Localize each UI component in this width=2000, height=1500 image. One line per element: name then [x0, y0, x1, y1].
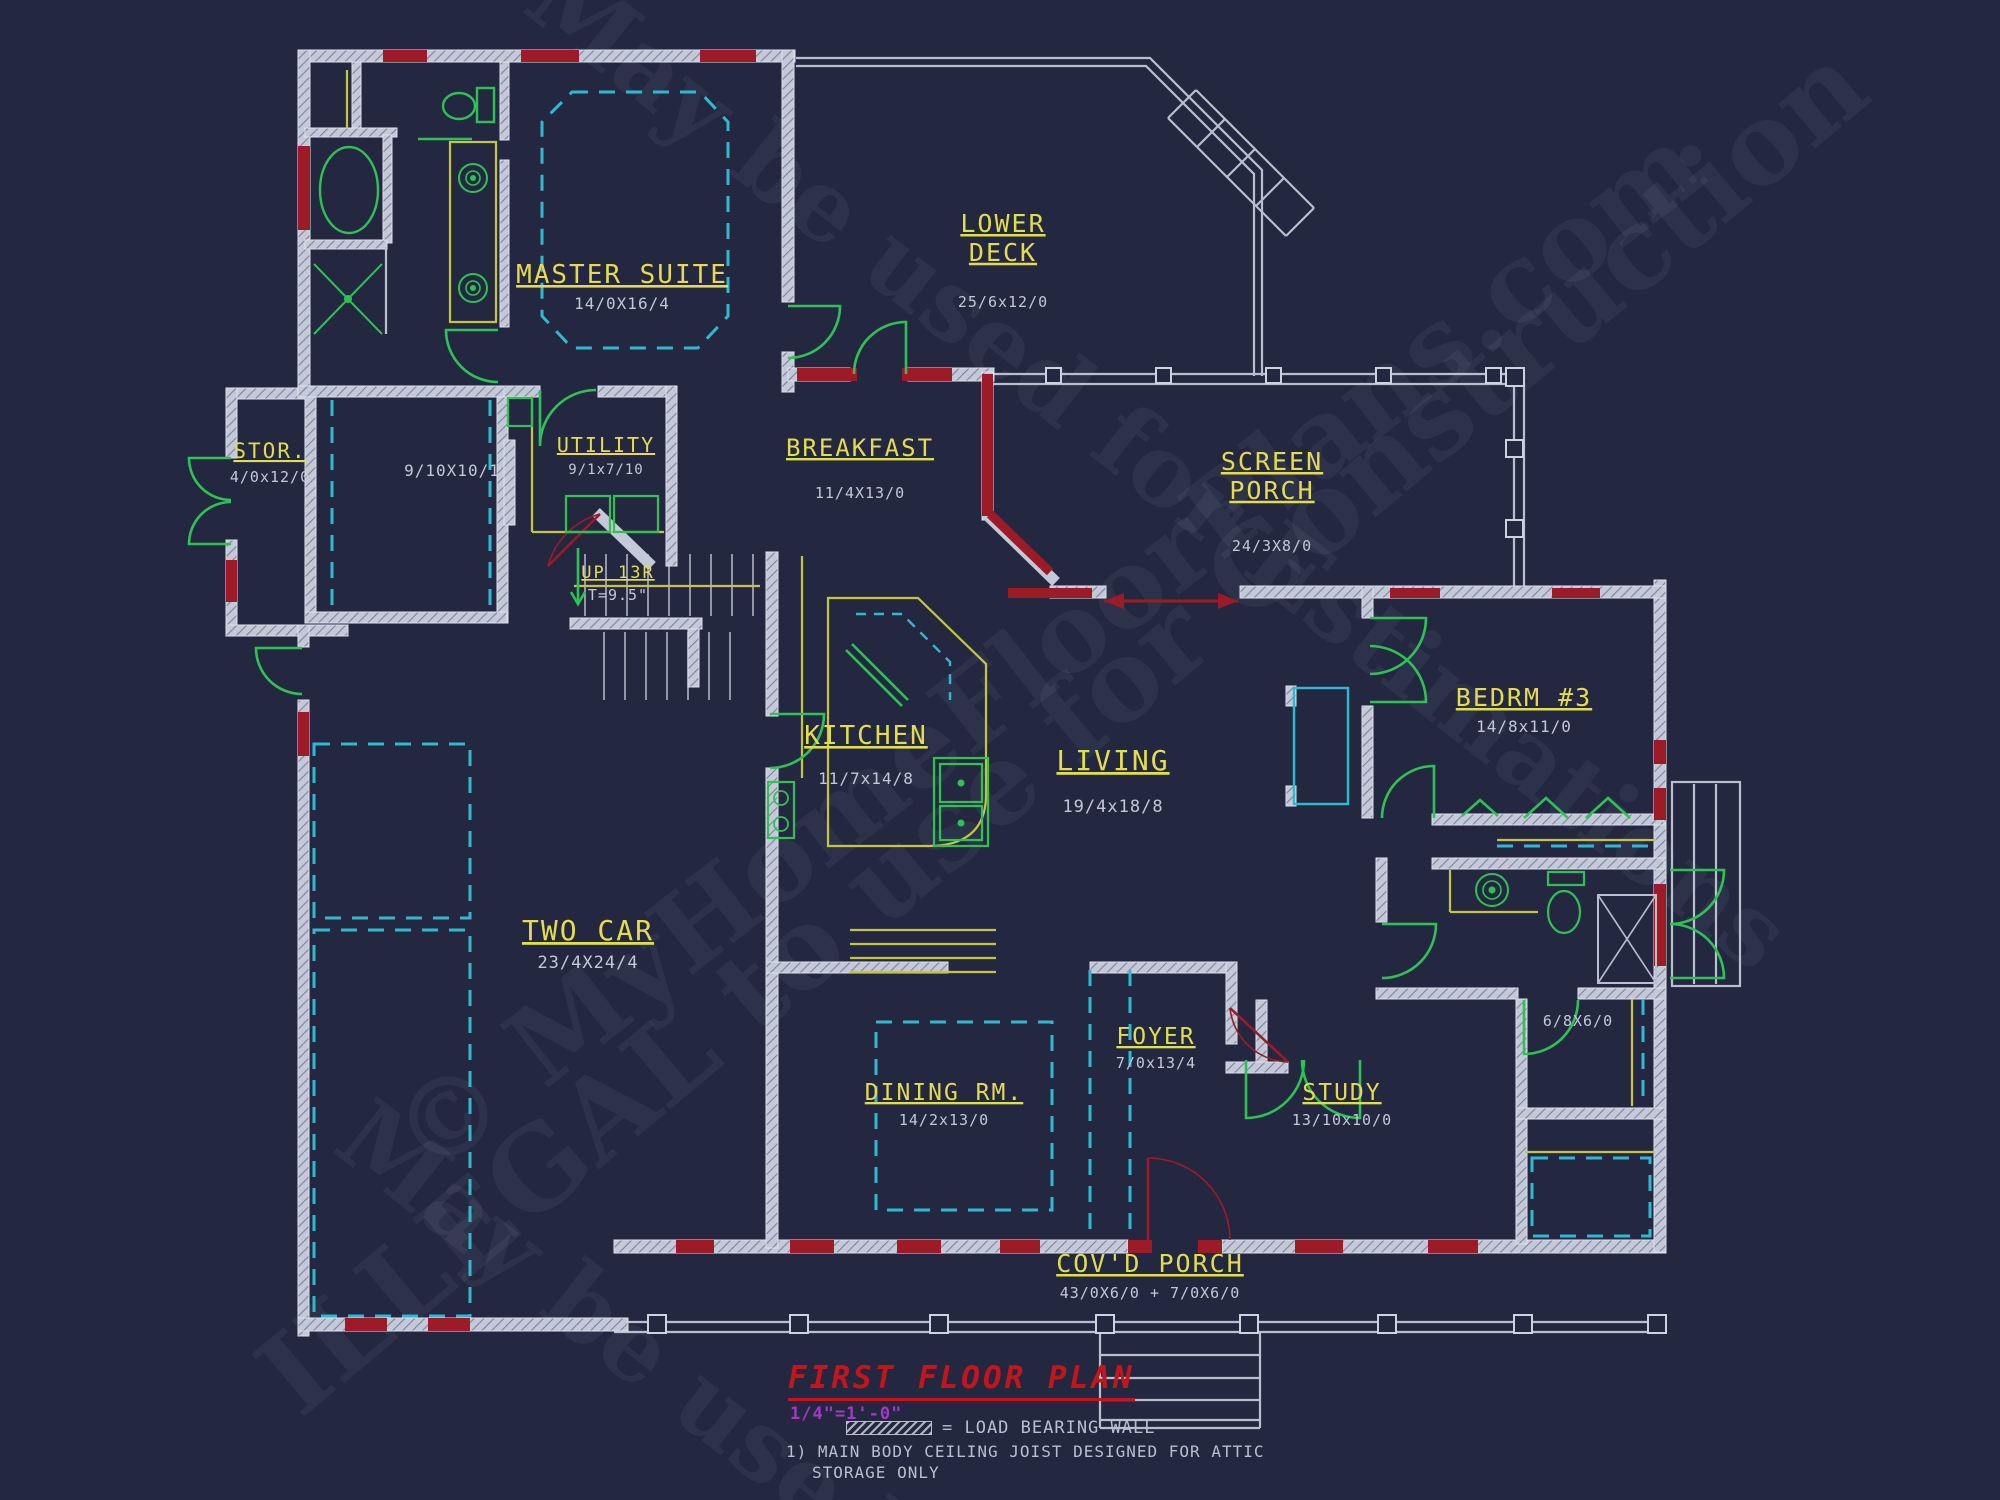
- room-label: DINING RM.: [865, 1080, 1023, 1106]
- room-label: LIVING: [1056, 744, 1169, 777]
- floor-plan-sheet: © MyHomeFloorPlans.comILLEGAL to use for…: [0, 0, 2000, 1500]
- room-dimensions: T=9.5": [588, 586, 648, 604]
- room-label: SCREENPORCH: [1221, 447, 1323, 505]
- room-dimensions: 6/8X6/0: [1543, 1012, 1613, 1030]
- room-dimensions: 13/10x10/0: [1292, 1111, 1392, 1129]
- room-dimensions: 14/0X16/4: [574, 294, 670, 313]
- room-label: UP 13R: [581, 563, 654, 583]
- room-label: UTILITY: [557, 433, 655, 457]
- room-dimensions: 25/6x12/0: [958, 293, 1048, 311]
- room-dimensions: 24/3X8/0: [1232, 537, 1312, 555]
- room-dimensions: 11/7x14/8: [818, 769, 914, 788]
- room-label: STUDY: [1302, 1080, 1381, 1106]
- room-label: TWO CAR: [522, 914, 654, 947]
- room-dimensions: 19/4x18/8: [1062, 797, 1163, 817]
- room-label: STOR.: [233, 439, 306, 463]
- floor-plan-drawing: © MyHomeFloorPlans.comILLEGAL to use for…: [0, 0, 2000, 1500]
- room-label: MASTER SUITE: [516, 260, 728, 290]
- room-dimensions: 14/8x11/0: [1476, 717, 1572, 736]
- room-label: COV'D PORCH: [1056, 1249, 1244, 1278]
- room-dimensions: 43/0X6/0 + 7/0X6/0: [1060, 1284, 1241, 1302]
- room-dimensions: 4/0x12/0: [230, 468, 310, 486]
- room-dimensions: 23/4X24/4: [537, 953, 638, 973]
- room-label: LOWERDECK: [960, 209, 1045, 267]
- room-dimensions: 9/1x7/10: [568, 462, 643, 478]
- room-dimensions: 7/0x13/4: [1116, 1054, 1196, 1072]
- room-label: BEDRM #3: [1456, 683, 1592, 712]
- room-label: KITCHEN: [804, 721, 928, 751]
- room-dimensions: 14/2x13/0: [899, 1111, 989, 1129]
- room-label: FOYER: [1116, 1024, 1195, 1050]
- room-dimensions: 9/10X10/1: [404, 461, 500, 480]
- room-dimensions: 11/4X13/0: [815, 484, 905, 502]
- room-label: BREAKFAST: [786, 434, 934, 462]
